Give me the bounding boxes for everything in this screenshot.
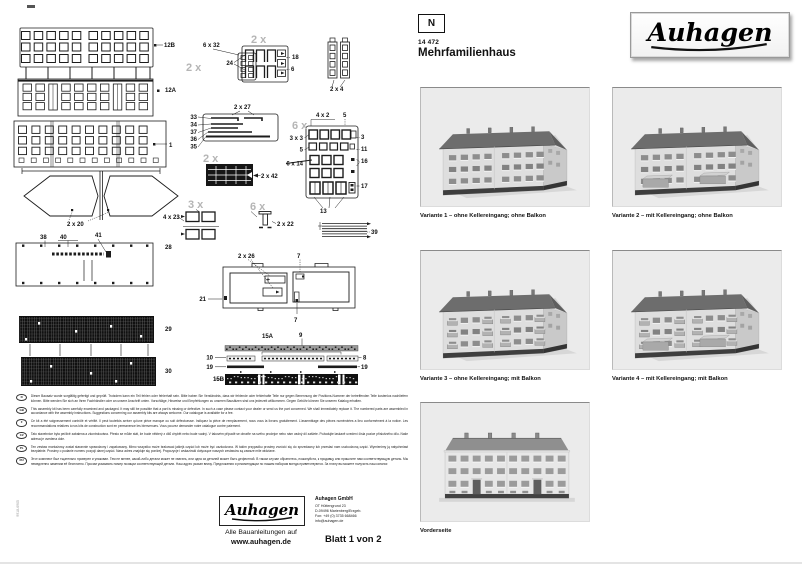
variant-panel: Vorderseite <box>420 402 590 534</box>
svg-text:38: 38 <box>40 235 47 241</box>
svg-text:39: 39 <box>371 230 378 236</box>
svg-text:6: 6 <box>291 67 295 73</box>
svg-text:16: 16 <box>361 159 368 165</box>
svg-text:13: 13 <box>320 209 327 215</box>
svg-text:21: 21 <box>199 297 206 303</box>
svg-text:9: 9 <box>299 333 303 339</box>
building-render <box>613 251 781 369</box>
footer-brand-logo: Auhagen <box>219 496 305 526</box>
sheet-number: Blatt 1 von 2 <box>325 534 382 545</box>
note-text: This assembly kit has been carefully exa… <box>31 407 408 416</box>
svg-text:29: 29 <box>165 327 172 333</box>
svg-text:2 x 27: 2 x 27 <box>234 105 251 111</box>
variant-panel: Variante 4 – mit Kellereingang; mit Balk… <box>612 250 782 382</box>
svg-text:34: 34 <box>190 123 197 129</box>
note-paragraph: GB This assembly kit has been carefully … <box>16 407 408 416</box>
website-url[interactable]: www.auhagen.de <box>213 537 309 546</box>
svg-text:3: 3 <box>361 135 365 141</box>
svg-text:3 x: 3 x <box>188 199 204 211</box>
page-title: Mehrfamilienhaus <box>418 47 516 59</box>
svg-text:2 x: 2 x <box>203 153 219 165</box>
svg-text:28: 28 <box>165 245 172 251</box>
building-render <box>421 403 589 521</box>
svg-text:40: 40 <box>60 235 67 241</box>
note-paragraph: PL Ten zestaw montażowy został starannie… <box>16 445 408 454</box>
svg-text:2 x 42: 2 x 42 <box>261 174 278 180</box>
parts-diagram: 12B12A12 x 204 x 233840412829306 x 32241… <box>0 0 412 392</box>
svg-text:36: 36 <box>190 137 197 143</box>
svg-text:6 x: 6 x <box>250 201 266 213</box>
address-line: info@auhagen.de <box>315 519 361 524</box>
building-render <box>421 251 589 369</box>
svg-text:30: 30 <box>165 369 172 375</box>
svg-text:8: 8 <box>363 356 367 362</box>
svg-text:2 x 22: 2 x 22 <box>277 222 294 228</box>
language-code-badge: PL <box>16 445 27 452</box>
building-render <box>613 88 781 206</box>
svg-text:7: 7 <box>294 318 298 324</box>
svg-text:24: 24 <box>226 61 233 67</box>
note-text: Tato stavebnice byla pečlivě zabalena a … <box>31 432 408 441</box>
svg-text:12A: 12A <box>165 88 177 94</box>
svg-text:33: 33 <box>190 115 197 121</box>
variant-image <box>612 250 782 370</box>
svg-text:15A: 15A <box>262 334 274 340</box>
company-name: Auhagen GmbH <box>315 496 361 502</box>
svg-text:1: 1 <box>169 143 173 149</box>
svg-text:35: 35 <box>190 145 197 151</box>
building-render <box>421 88 589 206</box>
variant-panel: Variante 2 – mit Kellereingang; ohne Bal… <box>612 87 782 219</box>
svg-text:19: 19 <box>361 365 368 371</box>
svg-text:4 x 23: 4 x 23 <box>163 215 180 221</box>
tagline-line1: Alle Bauanleitungen auf <box>213 529 309 536</box>
svg-text:6 x 14: 6 x 14 <box>286 162 303 168</box>
svg-text:11: 11 <box>361 147 368 153</box>
page-edge <box>0 562 802 564</box>
svg-text:2 x: 2 x <box>251 34 267 46</box>
variant-image <box>612 87 782 207</box>
svg-text:19: 19 <box>206 365 213 371</box>
svg-text:15B: 15B <box>213 377 225 383</box>
article-number: 14 472 <box>418 39 439 46</box>
svg-text:18: 18 <box>292 55 299 61</box>
svg-text:2 x 4: 2 x 4 <box>330 87 344 93</box>
variant-image <box>420 250 590 370</box>
svg-text:10: 10 <box>206 356 213 362</box>
svg-text:12B: 12B <box>164 43 176 49</box>
note-text: Ce kit a été soigneusement contrôlé et v… <box>31 419 408 428</box>
variant-image <box>420 87 590 207</box>
variant-caption: Variante 3 – ohne Kellereingang; mit Bal… <box>420 376 590 382</box>
svg-text:6 x 32: 6 x 32 <box>203 43 220 49</box>
svg-text:3 x 3: 3 x 3 <box>290 136 304 142</box>
note-paragraph: D Dieser Bausatz wurde sorgfältig gefert… <box>16 394 408 403</box>
variant-image <box>420 402 590 522</box>
svg-text:4 x 2: 4 x 2 <box>316 113 330 119</box>
svg-text:5: 5 <box>300 148 304 154</box>
variant-caption: Variante 2 – mit Kellereingang; ohne Bal… <box>612 213 782 219</box>
note-text: Dieser Bausatz wurde sorgfältig gefertig… <box>31 394 408 403</box>
company-block: Auhagen GmbH OT Hüttengrund 23D-09496 Ma… <box>315 496 361 524</box>
note-paragraph: CZ Tato stavebnice byla pečlivě zabalena… <box>16 432 408 441</box>
print-code: 9918-6905 <box>16 500 20 517</box>
tagline: Alle Bauanleitungen auf www.auhagen.de <box>213 529 309 546</box>
svg-text:41: 41 <box>95 233 102 239</box>
variant-panel: Variante 1 – ohne Kellereingang; ohne Ba… <box>420 87 590 219</box>
svg-text:17: 17 <box>361 184 368 190</box>
language-code-badge: F <box>16 419 27 426</box>
note-text: Ten zestaw montażowy został starannie sp… <box>31 445 408 454</box>
svg-text:2 x 26: 2 x 26 <box>238 254 255 260</box>
variant-panel: Variante 3 – ohne Kellereingang; mit Bal… <box>420 250 590 382</box>
svg-text:5: 5 <box>343 113 347 119</box>
language-code-badge: GB <box>16 407 27 414</box>
language-code-badge: D <box>16 394 27 401</box>
svg-text:37: 37 <box>190 130 197 136</box>
variant-caption: Vorderseite <box>420 528 590 534</box>
language-code-badge: CZ <box>16 432 27 439</box>
variant-caption: Variante 1 – ohne Kellereingang; ohne Ba… <box>420 213 590 219</box>
company-address: OT Hüttengrund 23D-09496 Marienberg/Erzg… <box>315 504 361 525</box>
svg-text:2 x 20: 2 x 20 <box>67 222 84 228</box>
note-text: Этот комплект был тщательно проверен и у… <box>31 457 408 466</box>
language-code-badge: RU <box>16 457 27 464</box>
svg-text:6 x: 6 x <box>292 120 308 132</box>
scale-badge: N <box>418 14 445 33</box>
note-paragraph: RU Этот комплект был тщательно проверен … <box>16 457 408 466</box>
variant-caption: Variante 4 – mit Kellereingang; mit Balk… <box>612 376 782 382</box>
brand-logo-text: Auhagen <box>645 17 772 47</box>
brand-logo: Auhagen <box>630 12 790 58</box>
note-paragraph: F Ce kit a été soigneusement contrôlé et… <box>16 419 408 428</box>
svg-text:2 x: 2 x <box>186 62 202 74</box>
footer-brand-logo-text: Auhagen <box>223 501 299 519</box>
svg-text:7: 7 <box>297 254 301 260</box>
multilingual-notes: D Dieser Bausatz wurde sorgfältig gefert… <box>16 394 408 470</box>
